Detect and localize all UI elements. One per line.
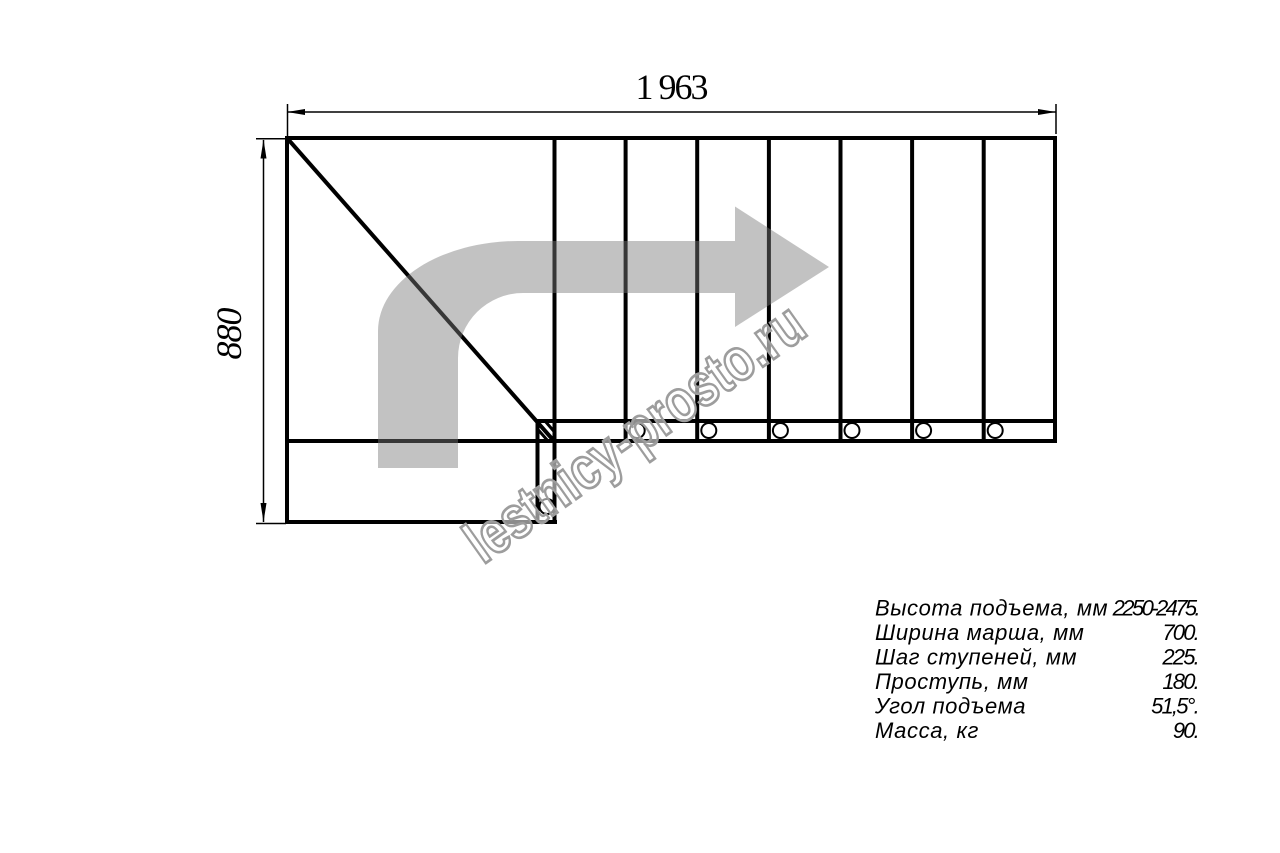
- svg-text:880: 880: [209, 308, 249, 360]
- svg-text:Ширина марша, мм: Ширина марша, мм: [875, 620, 1084, 645]
- svg-text:Высота подъема, мм: Высота подъема, мм: [875, 596, 1108, 621]
- svg-text:Проступь, мм: Проступь, мм: [875, 669, 1029, 694]
- svg-text:2250-2475.: 2250-2475.: [1112, 596, 1199, 621]
- svg-text:90.: 90.: [1173, 718, 1198, 743]
- svg-text:Шаг ступеней, мм: Шаг ступеней, мм: [875, 645, 1077, 670]
- svg-text:225.: 225.: [1161, 645, 1198, 670]
- svg-text:51,5°.: 51,5°.: [1151, 694, 1198, 719]
- svg-text:1 963: 1 963: [636, 67, 708, 107]
- svg-text:Масса, кг: Масса, кг: [875, 718, 979, 743]
- svg-text:Угол подъема: Угол подъема: [874, 694, 1026, 719]
- svg-text:700.: 700.: [1162, 620, 1198, 645]
- svg-text:180.: 180.: [1162, 669, 1198, 694]
